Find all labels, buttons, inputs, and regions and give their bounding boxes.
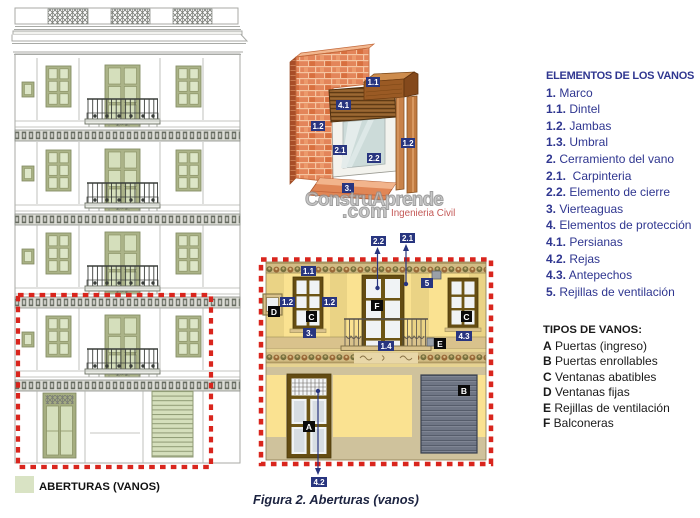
svg-text:A: A — [306, 422, 312, 432]
svg-text:C: C — [308, 312, 314, 322]
svg-text:F: F — [374, 301, 379, 311]
svg-text:1.2: 1.2 — [312, 122, 324, 131]
svg-text:Ingenieria Civil: Ingenieria Civil — [391, 208, 455, 219]
svg-text:1.2: 1.2 — [402, 139, 414, 148]
svg-text:1.4: 1.4 — [380, 342, 392, 351]
svg-text:ABERTURAS (VANOS): ABERTURAS (VANOS) — [39, 481, 160, 493]
svg-text:2.2: 2.2 — [373, 237, 385, 246]
svg-text:.com: .com — [342, 201, 388, 223]
svg-text:2.1: 2.1 — [334, 146, 346, 155]
svg-text:4.2: 4.2 — [313, 478, 325, 487]
svg-text:2.1: 2.1 — [402, 234, 414, 243]
svg-text:1.1: 1.1 — [367, 78, 379, 87]
svg-text:4.1: 4.1 — [338, 101, 350, 110]
svg-text:D: D — [271, 307, 277, 317]
svg-text:E: E — [437, 339, 443, 349]
svg-text:B: B — [461, 386, 467, 396]
svg-text:3.: 3. — [306, 329, 313, 338]
svg-text:1.1: 1.1 — [303, 267, 315, 276]
svg-text:5: 5 — [425, 279, 430, 288]
svg-text:1.2: 1.2 — [324, 298, 336, 307]
svg-text:C: C — [463, 312, 469, 322]
svg-text:1.2: 1.2 — [282, 298, 294, 307]
svg-text:2.2: 2.2 — [368, 154, 380, 163]
svg-text:4.3: 4.3 — [458, 332, 470, 341]
